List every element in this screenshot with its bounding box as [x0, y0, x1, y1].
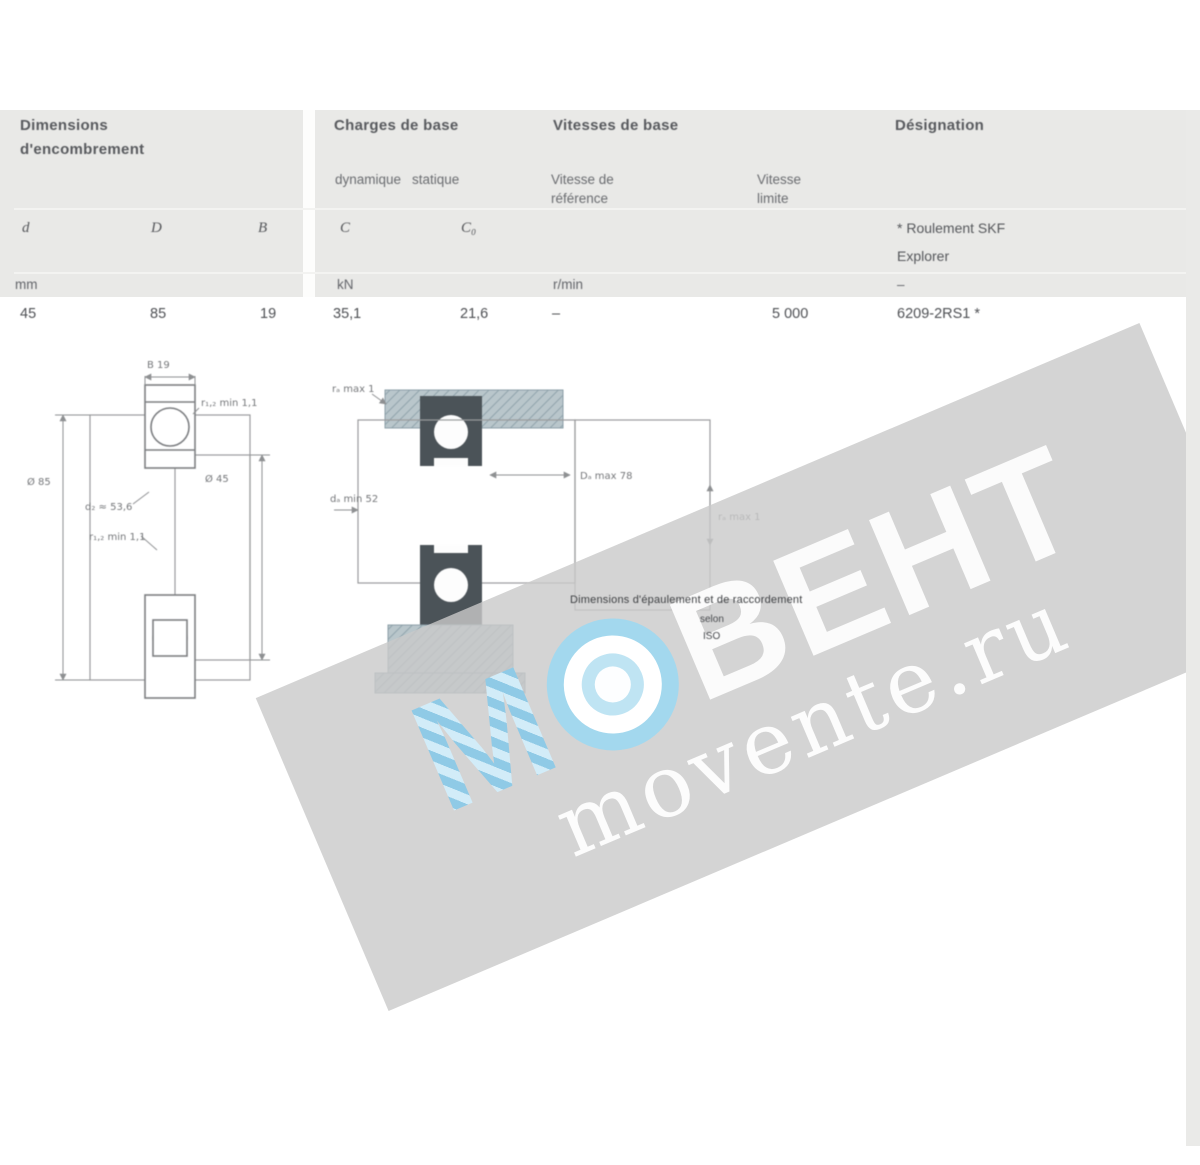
symbol-B: B — [258, 220, 267, 237]
subheader-dynamic: dynamique — [335, 170, 401, 189]
symbol-C: C — [340, 220, 350, 237]
subheader-ref-line1: Vitesse de — [551, 170, 614, 189]
row-value-d: 45 — [20, 306, 36, 322]
dim-label-bore-dia: Ø 45 — [205, 473, 229, 485]
dim-label-d2: d₂ ≈ 53,6 — [85, 502, 132, 513]
dim-label-da: dₐ min 52 — [330, 494, 378, 505]
bearing-section-drawing: B 19 r₁,₂ min 1,1 Ø 85 Ø 45 d₂ ≈ 53,6 r₁… — [25, 350, 325, 730]
row-value-D: 85 — [150, 306, 166, 322]
bearing-top-section — [420, 396, 482, 466]
unit-rpm: r/min — [553, 277, 583, 292]
symbol-C0: C₀ — [461, 220, 476, 237]
dim-label-r-top: r₁,₂ min 1,1 — [201, 398, 257, 409]
row-value-C: 35,1 — [333, 306, 361, 322]
subheader-ref-speed: Vitesse de référence — [551, 170, 614, 208]
col-group-dimensions-line1: Dimensions — [20, 114, 144, 138]
subheader-lim-line1: Vitesse — [757, 170, 801, 189]
catalog-page: Dimensions d'encombrement Charges de bas… — [0, 0, 1200, 1165]
row-value-ref-speed: – — [552, 306, 560, 322]
col-group-dimensions-line2: d'encombrement — [20, 138, 144, 162]
col-group-designation: Désignation — [895, 114, 984, 138]
row-value-B: 19 — [260, 306, 276, 322]
dim-label-B: B 19 — [147, 360, 170, 371]
explorer-note: * Roulement SKF Explorer — [897, 214, 1005, 270]
explorer-note-line1: * Roulement SKF — [897, 214, 1005, 242]
bearing-logo-inner-ring — [572, 644, 653, 725]
page-edge-strip — [1186, 110, 1200, 1146]
figure-caption: Dimensions d'épaulement et de raccordeme… — [570, 594, 802, 606]
row-value-C0: 21,6 — [460, 306, 488, 322]
figure-caption-line2: selon — [700, 614, 724, 625]
dim-label-outer-dia: Ø 85 — [27, 476, 51, 488]
figure-caption-line3: ISO — [703, 631, 720, 642]
dim-label-ra-top: rₐ max 1 — [332, 384, 375, 395]
subheader-static: statique — [412, 170, 459, 189]
unit-dash: – — [897, 277, 905, 292]
row-value-designation: 6209-2RS1 * — [897, 306, 980, 322]
unit-mm: mm — [15, 277, 38, 292]
subheader-lim-speed: Vitesse limite — [757, 170, 801, 208]
header-rule-top — [14, 208, 1186, 210]
explorer-note-line2: Explorer — [897, 242, 1005, 270]
symbol-D: D — [151, 220, 162, 237]
row-value-limit-speed: 5 000 — [772, 306, 808, 322]
col-group-loads: Charges de base — [334, 114, 459, 138]
subheader-ref-line2: référence — [551, 189, 614, 208]
dim-label-Da: Dₐ max 78 — [580, 471, 633, 482]
header-rule-units — [14, 272, 1186, 274]
dim-label-r-low: r₁,₂ min 1,1 — [89, 532, 145, 543]
col-group-dimensions: Dimensions d'encombrement — [20, 114, 144, 162]
subheader-lim-line2: limite — [757, 189, 801, 208]
column-gap — [303, 110, 315, 297]
unit-kn: kN — [337, 277, 354, 292]
symbol-d: d — [22, 220, 30, 237]
col-group-speeds: Vitesses de base — [553, 114, 678, 138]
